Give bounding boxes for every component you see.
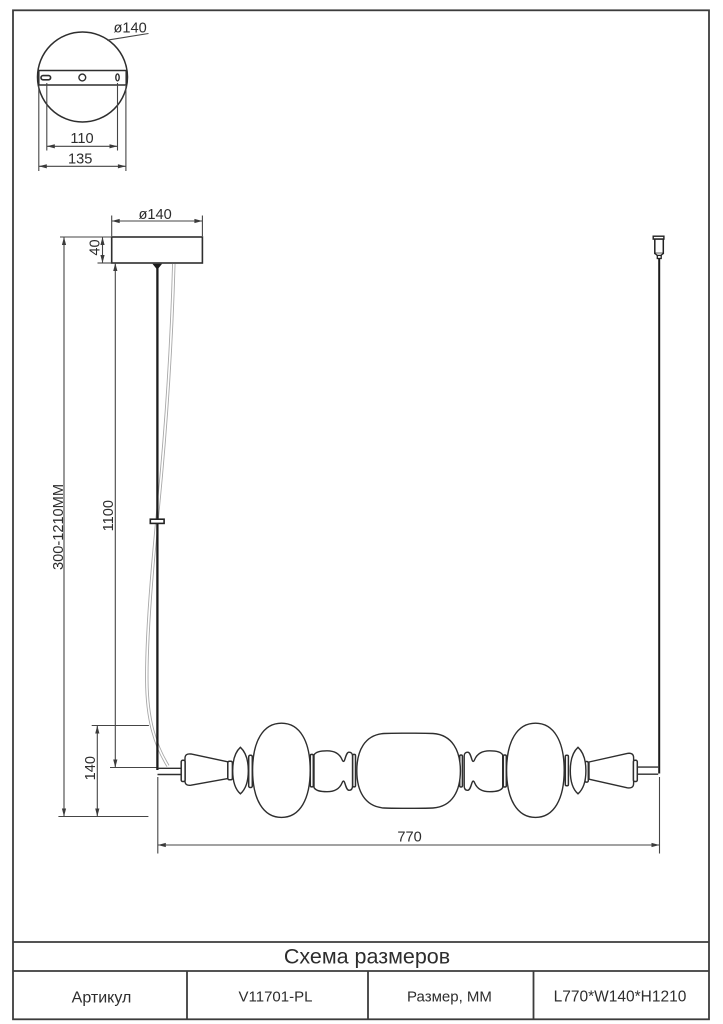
- svg-text:Размер, ММ: Размер, ММ: [407, 989, 492, 1006]
- svg-text:L770*W140*H1210: L770*W140*H1210: [554, 989, 687, 1006]
- svg-text:135: 135: [68, 151, 92, 167]
- svg-text:770: 770: [397, 830, 421, 846]
- svg-text:110: 110: [70, 131, 93, 147]
- svg-text:300-1210MM: 300-1210MM: [51, 484, 67, 570]
- svg-text:V11701-PL: V11701-PL: [239, 989, 313, 1006]
- svg-text:140: 140: [83, 756, 99, 780]
- svg-text:ø140: ø140: [138, 207, 171, 223]
- svg-text:40: 40: [88, 239, 104, 255]
- svg-text:Артикул: Артикул: [72, 990, 132, 1007]
- svg-text:1100: 1100: [101, 500, 117, 531]
- svg-text:ø140: ø140: [114, 20, 147, 36]
- svg-text:Схема размеров: Схема размеров: [284, 945, 450, 969]
